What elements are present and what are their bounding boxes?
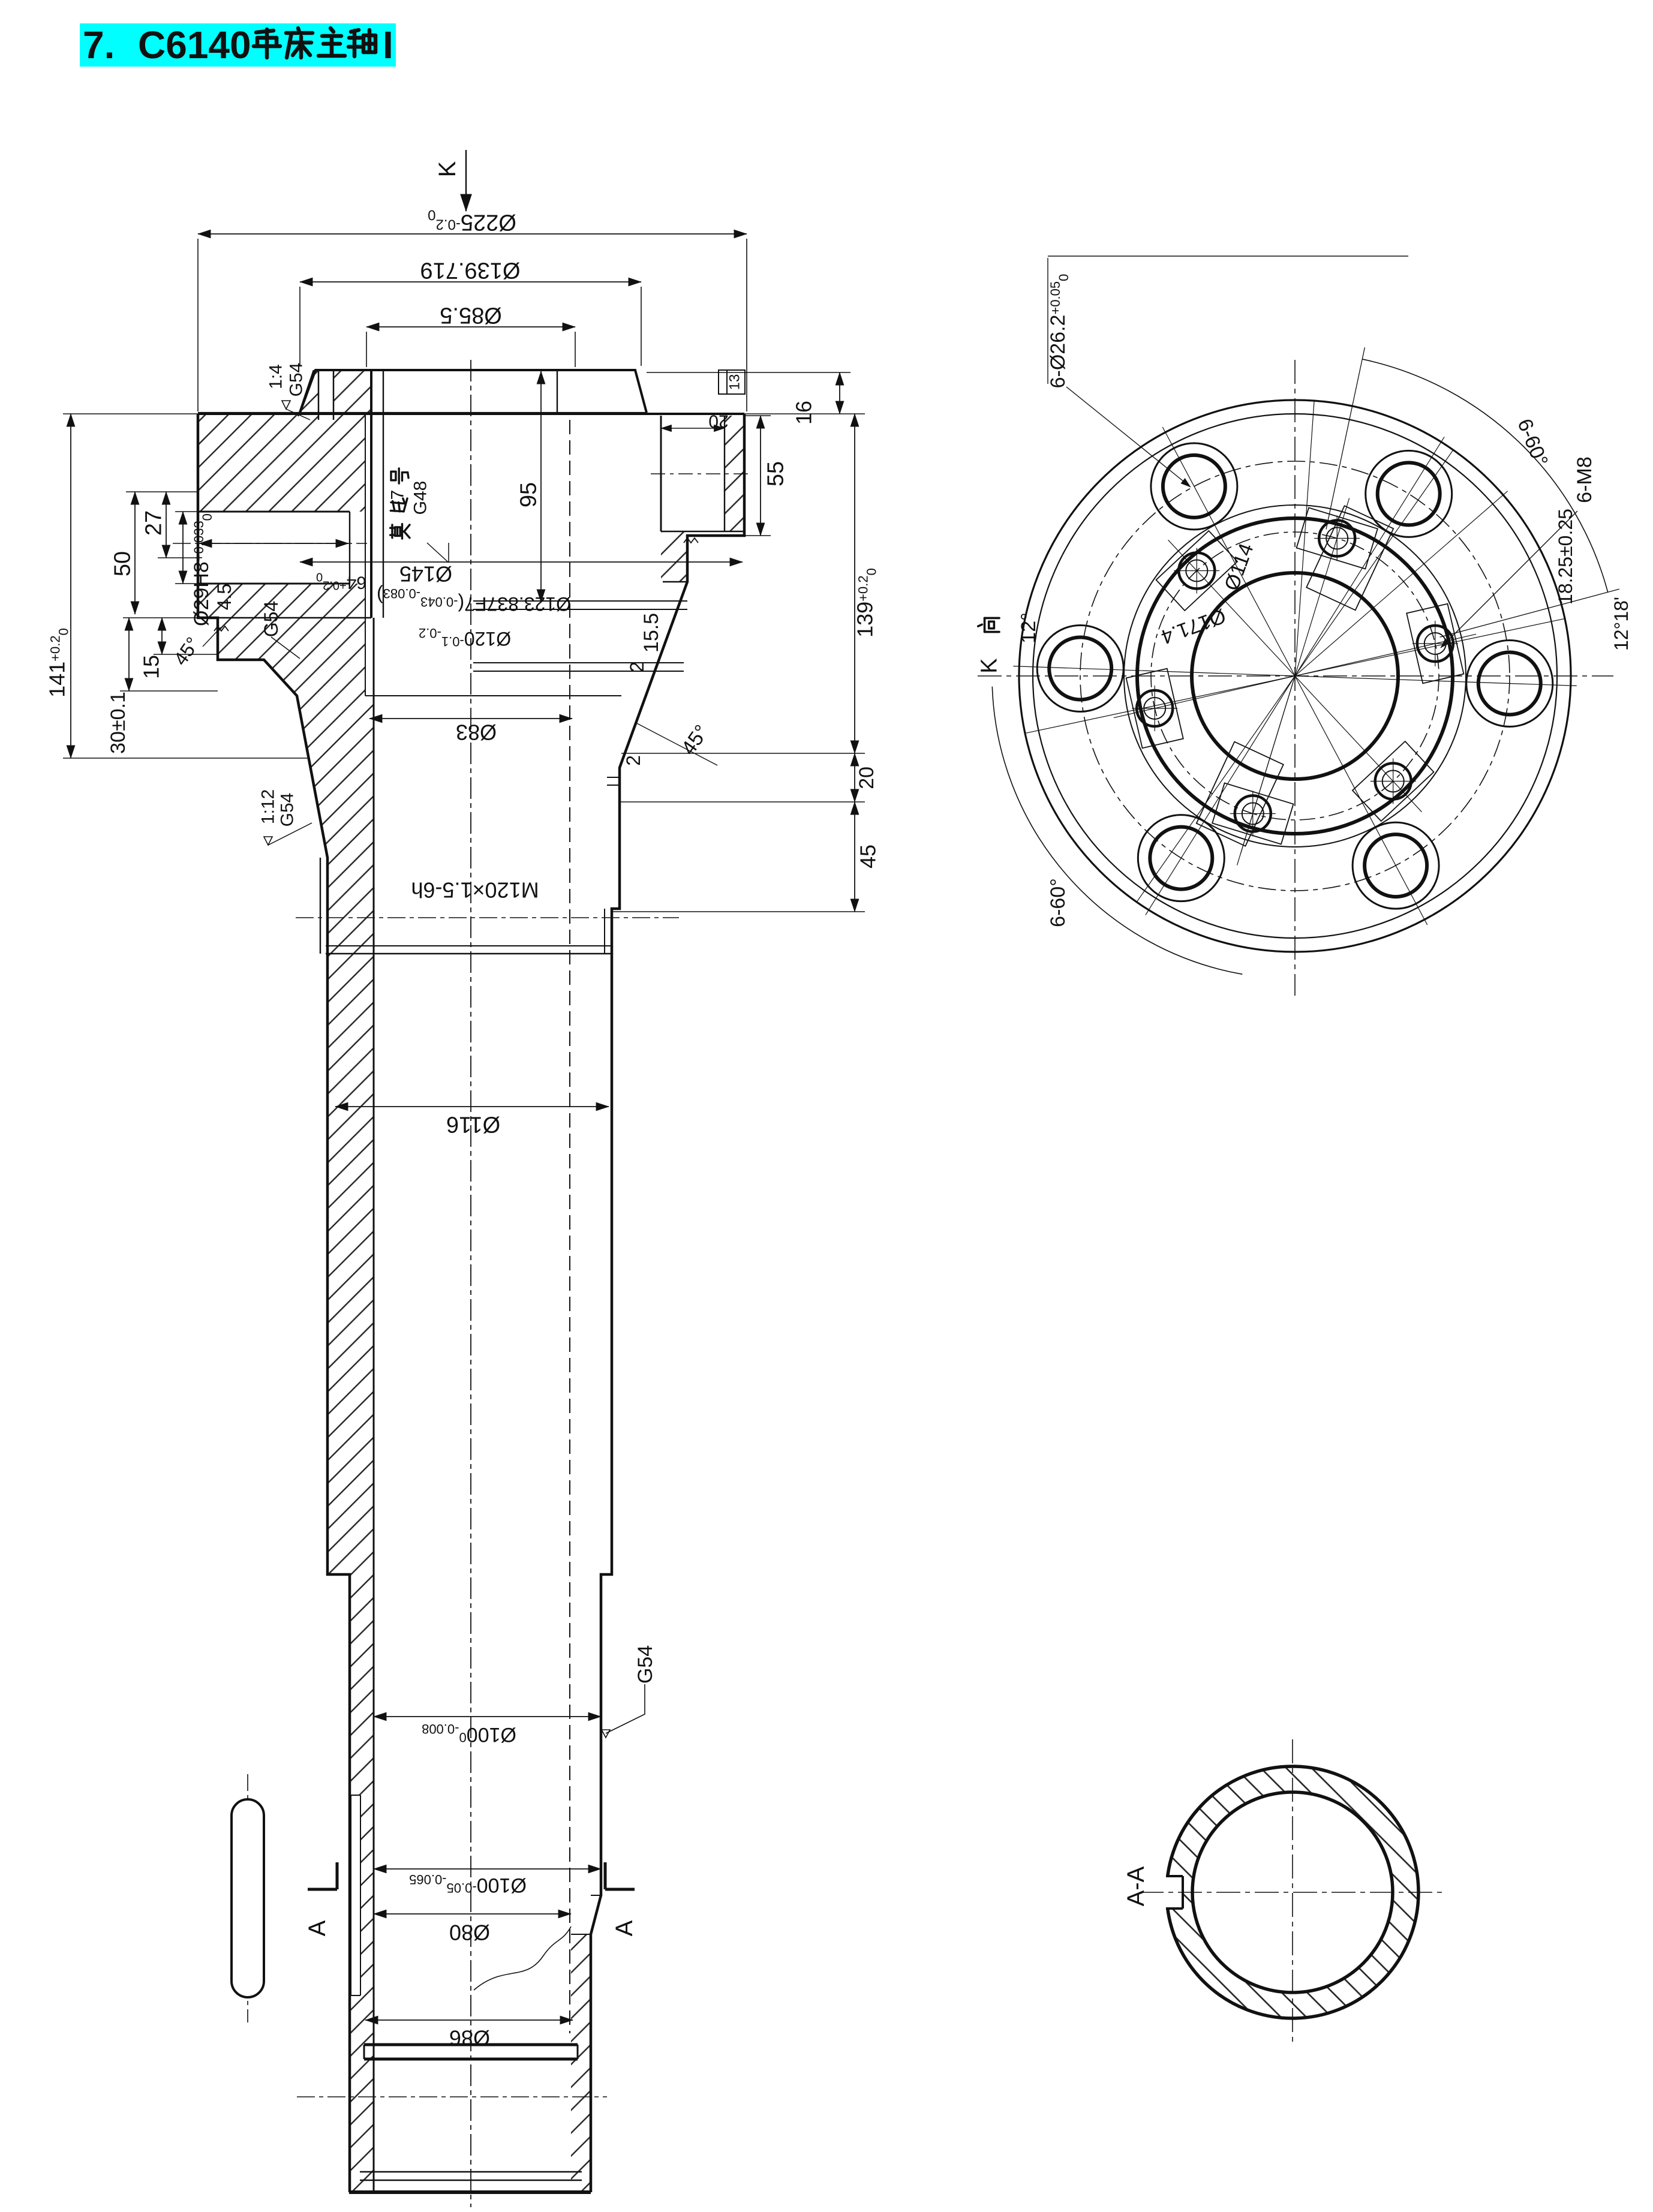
svg-text:7.: 7.	[83, 23, 115, 67]
svg-text:6-60°: 6-60°	[1047, 878, 1069, 927]
svg-text:2: 2	[623, 755, 644, 766]
svg-text:2: 2	[626, 662, 648, 672]
svg-text:50: 50	[110, 551, 135, 576]
svg-text:I: I	[383, 23, 393, 67]
svg-text:1:12: 1:12	[259, 789, 278, 824]
svg-text:30±0.1: 30±0.1	[107, 692, 130, 754]
svg-text:13: 13	[726, 374, 743, 390]
svg-text:M120×1.5-6h: M120×1.5-6h	[411, 877, 539, 902]
svg-text:A: A	[304, 1920, 330, 1936]
svg-text:6-M8: 6-M8	[1573, 456, 1596, 503]
svg-text:K: K	[976, 658, 1002, 673]
svg-text:7: 7	[388, 490, 408, 500]
svg-text:12°: 12°	[1017, 612, 1040, 643]
svg-text:20: 20	[708, 411, 728, 431]
svg-text:C6140: C6140	[138, 23, 251, 67]
svg-text:15: 15	[139, 655, 164, 679]
svg-text:A-A: A-A	[1123, 1866, 1149, 1906]
svg-text:Ø86: Ø86	[449, 2025, 490, 2050]
svg-text:Ø116: Ø116	[446, 1112, 500, 1137]
svg-text:55: 55	[763, 461, 788, 486]
svg-text:Ø145: Ø145	[399, 561, 452, 586]
svg-text:G54: G54	[278, 793, 297, 827]
svg-text:4.5: 4.5	[214, 584, 235, 610]
svg-text:18.25±0.25: 18.25±0.25	[1555, 509, 1576, 605]
svg-text:20: 20	[855, 767, 878, 789]
svg-text:A: A	[611, 1920, 638, 1936]
svg-text:Ø83: Ø83	[456, 720, 497, 744]
svg-text:G54: G54	[287, 363, 306, 397]
svg-text:G48: G48	[411, 481, 431, 515]
svg-text:1:4: 1:4	[266, 364, 286, 389]
svg-text:G54: G54	[634, 1645, 657, 1684]
svg-text:G54: G54	[260, 601, 282, 637]
svg-text:45: 45	[856, 844, 880, 868]
svg-text:Ø85.5: Ø85.5	[440, 303, 502, 328]
svg-text:12°18': 12°18'	[1610, 597, 1632, 651]
svg-text:27: 27	[141, 510, 166, 536]
svg-text:K: K	[434, 161, 461, 177]
svg-text:Ø80: Ø80	[449, 1920, 490, 1944]
svg-text:95: 95	[516, 482, 541, 507]
svg-text:Ø139.719: Ø139.719	[420, 258, 521, 283]
svg-text:16: 16	[792, 401, 816, 425]
svg-text:15.5: 15.5	[640, 613, 663, 653]
